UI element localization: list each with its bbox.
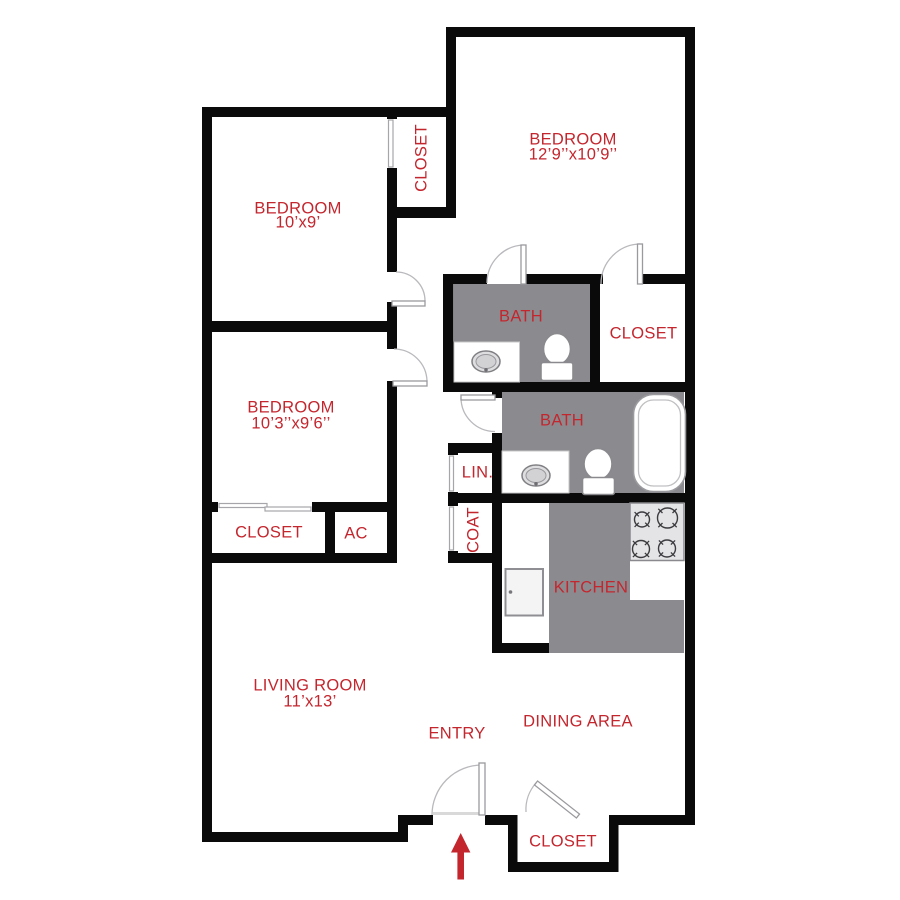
room-label-coat: COAT: [465, 507, 484, 553]
entry-closet-door: [526, 781, 580, 818]
room-label-kitchen: KITCHEN: [554, 578, 629, 597]
room-label-entry: ENTRY: [428, 724, 485, 743]
bath-upper-sink-icon: [472, 351, 500, 372]
room-dims-living-room: 11’x13’: [283, 693, 336, 712]
room-label-linen: LIN.: [462, 463, 493, 482]
bath-lower-sink-icon: [522, 465, 550, 486]
room-label-ac: AC: [344, 524, 368, 543]
bathtub-icon: [634, 395, 686, 492]
room-dims-bedroom-middle: 10’3’’x9’6’’: [251, 415, 330, 434]
kitchen-floor-right: [630, 600, 684, 653]
room-dims-bedroom-top-right: 12’9’’x10’9’’: [529, 145, 618, 164]
bath-upper-toilet-icon: [541, 334, 573, 381]
entry-arrow-icon: [451, 833, 470, 880]
floor-plan-drawing: [0, 0, 900, 900]
room-label-closet-top-left: CLOSET: [412, 124, 431, 192]
bedroom-middle-closet-slider-2: [265, 507, 311, 511]
refrigerator-icon: [506, 569, 544, 616]
bedroom-middle-door: [393, 349, 427, 386]
coat-door-panel: [450, 507, 454, 550]
room-label-closet-entry: CLOSET: [529, 832, 597, 851]
linen-door-panel: [450, 456, 454, 491]
stove-icon: [630, 503, 684, 561]
bath-lower-door: [461, 395, 495, 432]
room-label-dining-area: DINING AREA: [523, 713, 633, 732]
floor-plan: BEDROOM 12’9’’x10’9’’ BEDROOM 10’x9’ CLO…: [0, 0, 900, 900]
bedroom-middle-closet-slider-1: [219, 504, 267, 508]
bath-lower-toilet-icon: [583, 449, 615, 495]
room-dims-bedroom-top-left: 10’x9’: [276, 213, 321, 232]
entry-door: [432, 763, 485, 815]
room-label-closet-top-right: CLOSET: [610, 325, 678, 344]
room-label-bath-upper: BATH: [499, 308, 543, 327]
room-label-bath-lower: BATH: [540, 412, 584, 431]
closet-top-left-slider: [389, 120, 394, 167]
room-label-closet-bedroom-middle: CLOSET: [235, 523, 303, 542]
